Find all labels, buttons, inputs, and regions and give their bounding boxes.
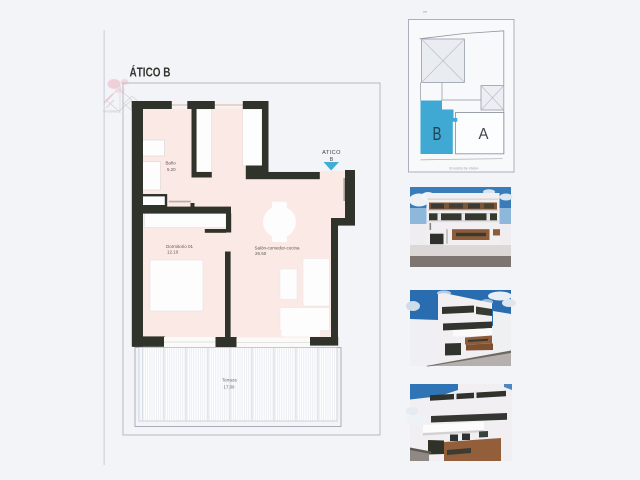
svg-text:26.50: 26.50 bbox=[255, 251, 267, 256]
svg-text:A: A bbox=[479, 126, 489, 143]
svg-text:Salón-comedor-cocina: Salón-comedor-cocina bbox=[255, 245, 301, 250]
svg-text:ÁTICO B: ÁTICO B bbox=[130, 65, 171, 80]
svg-text:B: B bbox=[433, 124, 442, 144]
svg-text:12.10: 12.10 bbox=[167, 249, 179, 254]
svg-text:Dormitorio 01: Dormitorio 01 bbox=[166, 244, 194, 249]
svg-text:El recinto De «Sole»: El recinto De «Sole» bbox=[449, 167, 478, 171]
svg-text:17.00: 17.00 bbox=[224, 385, 236, 390]
svg-text:inmobiliaria: inmobiliaria bbox=[103, 110, 120, 114]
svg-text:B: B bbox=[330, 157, 334, 163]
svg-text:Terraza: Terraza bbox=[222, 378, 237, 383]
svg-text:5.20: 5.20 bbox=[167, 167, 176, 172]
svg-text:Baño: Baño bbox=[166, 161, 177, 166]
svg-text:ATICO: ATICO bbox=[322, 150, 341, 156]
